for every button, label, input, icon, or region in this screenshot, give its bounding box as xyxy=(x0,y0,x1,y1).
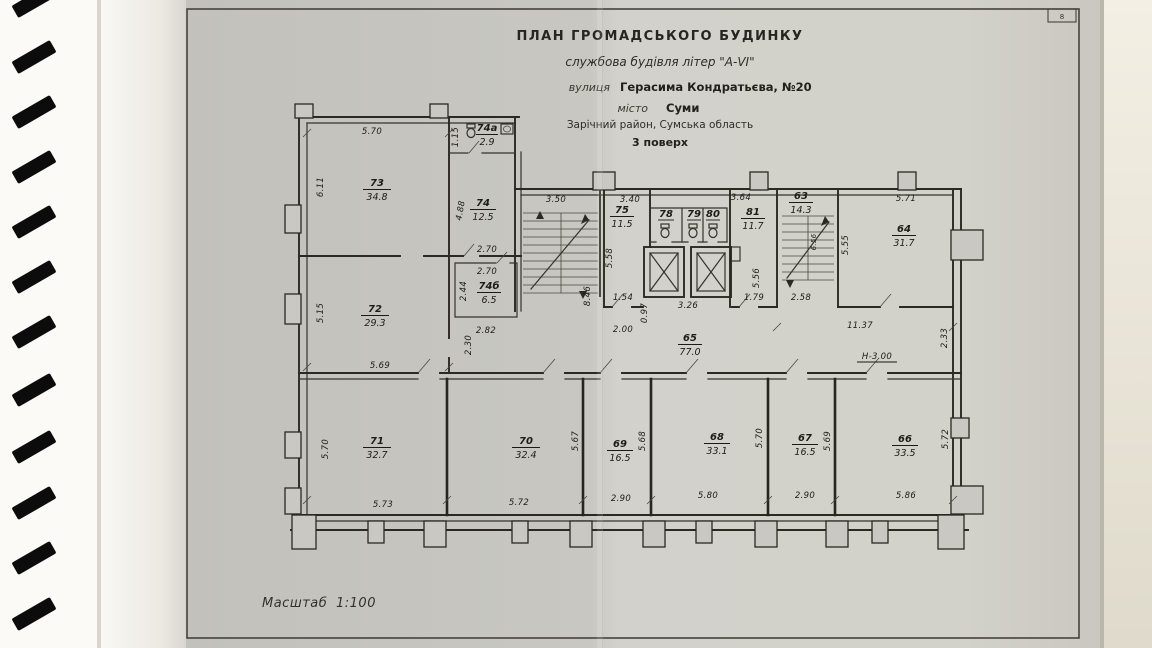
svg-text:16.5: 16.5 xyxy=(609,453,630,464)
room-78-label: 78 xyxy=(658,209,674,220)
svg-text:6.5: 6.5 xyxy=(481,295,496,306)
dim-71-bottom: 5.73 xyxy=(373,500,393,510)
svg-text:63: 63 xyxy=(794,191,808,202)
dim-74b-left: 2.44 xyxy=(459,281,469,301)
svg-text:14.3: 14.3 xyxy=(790,205,811,216)
svg-text:74б: 74б xyxy=(479,280,500,292)
dim-stair2-inner: 6.56 xyxy=(810,233,818,250)
dim-74a-left: 1.15 xyxy=(451,127,461,147)
dim-70-bottom: 5.72 xyxy=(509,498,529,508)
svg-text:11.7: 11.7 xyxy=(742,221,763,232)
dim-stair1-top: 3.50 xyxy=(546,195,566,205)
svg-text:31.7: 31.7 xyxy=(893,238,914,249)
dim-71-top: 5.69 xyxy=(370,361,390,371)
dim-81-top: 3.64 xyxy=(731,193,751,203)
dim-75-below: 2.00 xyxy=(613,325,633,335)
room-79-label: 79 xyxy=(687,209,701,220)
dim-elev-left: 0.97 xyxy=(640,303,650,323)
title-line2: службова будівля літер "А-VI" xyxy=(565,55,754,69)
svg-text:34.8: 34.8 xyxy=(366,192,387,203)
dim-73-top: 5.70 xyxy=(362,127,382,137)
dim-74b-below: 2.30 xyxy=(464,335,474,355)
svg-text:16.5: 16.5 xyxy=(794,447,815,458)
svg-text:66: 66 xyxy=(898,434,912,445)
title-line4-value: Суми xyxy=(666,101,699,115)
paper-left-margin xyxy=(100,0,186,648)
svg-text:67: 67 xyxy=(798,433,812,444)
dim-68-bottom: 5.80 xyxy=(698,491,718,501)
svg-text:2.9: 2.9 xyxy=(479,137,494,148)
svg-text:68: 68 xyxy=(710,432,724,443)
scale-value: 1:100 xyxy=(336,596,376,611)
svg-text:32.7: 32.7 xyxy=(366,450,387,461)
dim-75-bottom: 1.54 xyxy=(613,293,633,303)
svg-text:75: 75 xyxy=(615,205,629,216)
dim-64-left: 5.55 xyxy=(841,235,851,255)
dim-stair1-right: 8.46 xyxy=(583,286,593,306)
dim-69-right: 5.68 xyxy=(638,431,648,451)
table-surface xyxy=(1100,0,1152,648)
dim-75-top: 3.40 xyxy=(620,195,640,205)
svg-text:64: 64 xyxy=(897,224,911,235)
svg-text:72: 72 xyxy=(368,304,382,315)
dim-74b-bottom: 2.82 xyxy=(476,326,496,336)
svg-text:74а: 74а xyxy=(477,123,498,134)
svg-text:73: 73 xyxy=(370,178,384,189)
dim-elev-bottom: 3.26 xyxy=(678,301,698,311)
corner-mark: 8 xyxy=(1060,13,1064,21)
svg-text:71: 71 xyxy=(370,436,384,447)
dim-74b-top1: 2.70 xyxy=(477,245,497,255)
svg-text:77.0: 77.0 xyxy=(679,347,700,358)
title-line3-label: вулиця xyxy=(569,81,611,94)
dim-74b-top2: 2.70 xyxy=(477,267,497,277)
svg-text:80: 80 xyxy=(706,209,720,220)
svg-text:32.4: 32.4 xyxy=(515,450,536,461)
svg-text:74: 74 xyxy=(476,198,490,209)
paper-fold-line xyxy=(602,0,603,648)
title-line3-value: Герасима Кондратьєва, №20 xyxy=(620,80,812,94)
paper-left-edge xyxy=(97,0,101,648)
dim-67-right: 5.69 xyxy=(823,431,833,451)
svg-text:69: 69 xyxy=(613,439,627,450)
paper-right-edge xyxy=(1100,0,1104,648)
dim-67-bottom: 2.90 xyxy=(795,491,815,501)
dim-right-side: 2.33 xyxy=(940,328,950,348)
scale-note: Масштаб 1:100 xyxy=(262,596,376,611)
svg-text:78: 78 xyxy=(659,209,673,220)
dim-72-left: 5.15 xyxy=(316,303,326,323)
scale-label: Масштаб xyxy=(262,596,327,611)
dim-66-right: 5.72 xyxy=(941,429,951,449)
photo-of-floor-plan: 8 ПЛАН ГРОМАДСЬКОГО БУДИНКУ службова буд… xyxy=(0,0,1152,648)
title-line4-label: місто xyxy=(617,102,648,115)
svg-text:11.5: 11.5 xyxy=(611,219,632,230)
dim-69-bottom: 2.90 xyxy=(611,494,631,504)
dim-right-bottom: 11.37 xyxy=(847,321,873,331)
svg-text:33.1: 33.1 xyxy=(706,446,727,457)
dim-81-bottom: 1.79 xyxy=(744,293,764,303)
title-line5: Зарічний район, Сумська область xyxy=(567,119,753,131)
dim-81-right: 5.56 xyxy=(752,268,762,288)
svg-text:79: 79 xyxy=(687,209,701,220)
svg-text:33.5: 33.5 xyxy=(894,448,915,459)
photo-background xyxy=(0,0,1152,648)
svg-text:Н-3.00: Н-3.00 xyxy=(862,352,892,362)
svg-text:81: 81 xyxy=(746,207,760,218)
dim-stair2-bottom: 2.58 xyxy=(791,293,811,303)
height-mark: Н-3.00 xyxy=(857,352,897,362)
dim-64-top: 5.71 xyxy=(896,194,916,204)
dim-68-right: 5.70 xyxy=(755,428,765,448)
dim-71-left: 5.70 xyxy=(321,439,331,459)
dim-73-left: 6.11 xyxy=(316,177,326,197)
title-line6: 3 поверх xyxy=(632,136,688,149)
dim-75-left: 5.58 xyxy=(605,248,615,268)
svg-text:65: 65 xyxy=(683,333,697,344)
title-line1: ПЛАН ГРОМАДСЬКОГО БУДИНКУ xyxy=(517,29,804,44)
room-80-label: 80 xyxy=(706,209,720,220)
dim-66-bottom: 5.86 xyxy=(896,491,916,501)
dim-70-right: 5.67 xyxy=(571,431,581,451)
svg-text:12.5: 12.5 xyxy=(472,212,493,223)
svg-text:70: 70 xyxy=(519,436,533,447)
svg-text:29.3: 29.3 xyxy=(364,318,385,329)
